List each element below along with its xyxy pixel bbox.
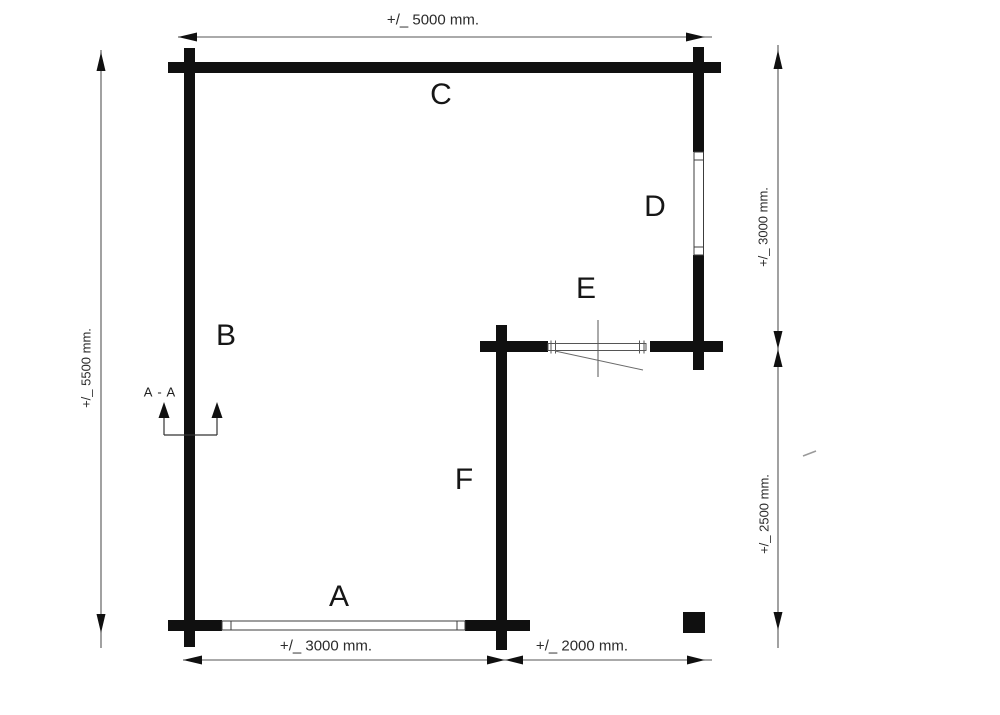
dimension-bottom-left-label: +/_ 3000 mm. [280, 638, 372, 655]
wall-e-right-segment [650, 341, 723, 352]
section-marker-label: A - A [144, 385, 176, 400]
wall-e-label: E [576, 272, 596, 306]
wall-f-label: F [455, 463, 473, 497]
wall-d-right-lower [693, 255, 704, 370]
wall-a-left-segment [168, 620, 222, 631]
dimension-right-lower-label: +/_ 2500 mm. [757, 474, 772, 554]
wall-c-label: C [430, 78, 452, 112]
wall-c-top [168, 62, 721, 73]
door-swing-line [555, 351, 643, 370]
wall-b-left [184, 48, 195, 647]
wall-d-right-upper [693, 47, 704, 152]
floorplan-page: +/_ 5000 mm. +/_ 5500 mm. +/_ 3000 mm. +… [0, 0, 1000, 715]
wall-a-right-segment [465, 620, 530, 631]
dimension-right-upper-label: +/_ 3000 mm. [756, 187, 771, 267]
door-e [548, 320, 646, 377]
wall-e-left-segment [480, 341, 548, 352]
window-wall-d [694, 152, 704, 255]
wall-d-label: D [644, 190, 666, 224]
dimension-bottom-right-label: +/_ 2000 mm. [536, 638, 628, 655]
floorplan-drawing [0, 0, 1000, 715]
dimension-top-label: +/_ 5000 mm. [387, 12, 479, 29]
corner-post [683, 612, 705, 633]
wall-b-label: B [216, 319, 236, 353]
window-wall-a [222, 621, 465, 630]
stray-mark [803, 451, 816, 456]
dimension-left-label: +/_ 5500 mm. [79, 328, 94, 408]
wall-f [496, 325, 507, 650]
wall-a-label: A [329, 580, 349, 614]
